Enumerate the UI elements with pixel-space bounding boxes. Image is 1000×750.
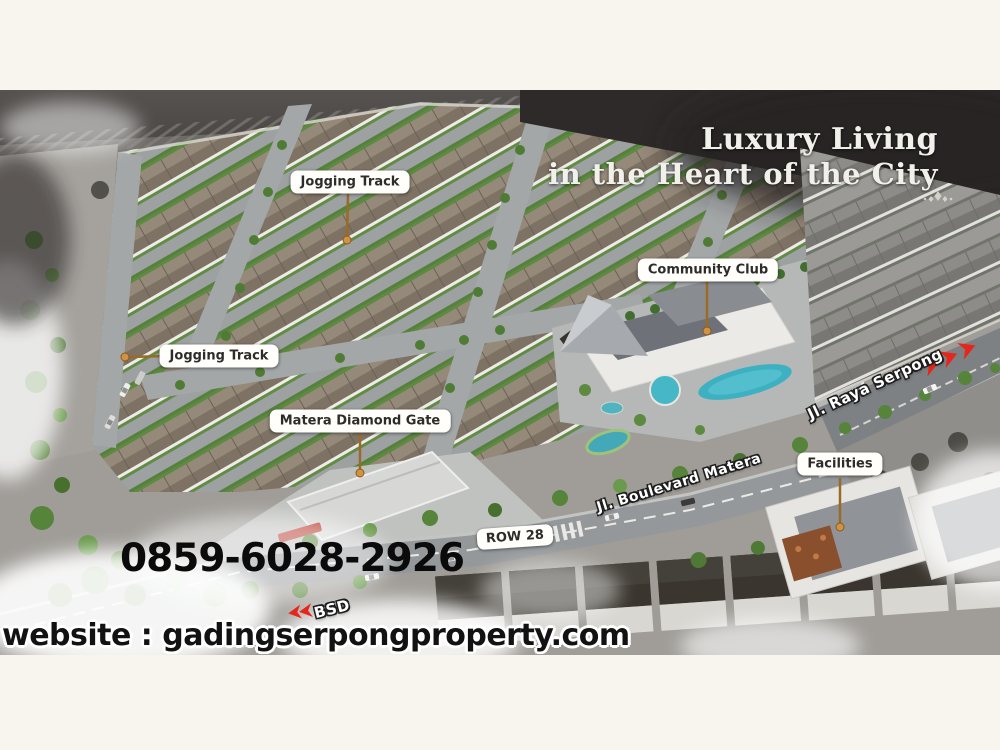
phone-number: 0859-6028-2926	[120, 536, 464, 581]
pond-small	[601, 402, 623, 414]
callout-matera-diamond-gate: Matera Diamond Gate	[270, 410, 451, 433]
ad-canvas: Luxury Living in the Heart of the City J…	[0, 0, 1000, 750]
callout-community-club: Community Club	[638, 259, 778, 282]
headline-block: Luxury Living in the Heart of the City	[548, 122, 938, 192]
round-pool	[650, 375, 680, 405]
headline-line1: Luxury Living	[548, 122, 938, 157]
headline-line2: in the Heart of the City	[548, 157, 938, 191]
callout-jogging-track-west: Jogging Track	[160, 345, 279, 368]
callout-jogging-track-north: Jogging Track	[291, 171, 410, 194]
callout-facilities: Facilities	[797, 453, 882, 476]
website-text: website : gadingserpongproperty.com	[2, 618, 630, 653]
